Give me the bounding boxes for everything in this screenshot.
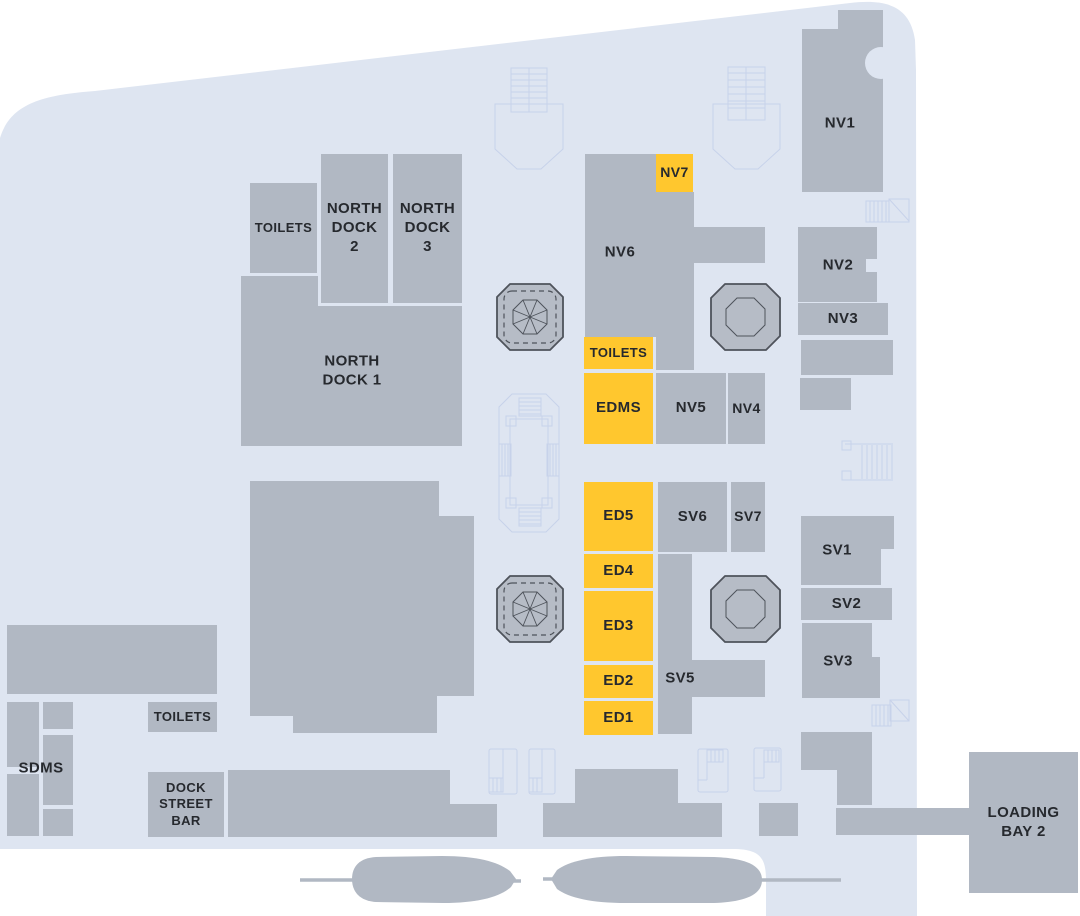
room-label: NV7 <box>660 164 688 182</box>
room-label-north-dock-1: NORTH DOCK 1 <box>322 352 381 390</box>
room-sv6[interactable]: SV6 <box>658 482 727 552</box>
venue-floor-plan: TOILETS NORTH DOCK 2 NORTH DOCK 3 NV7 NV… <box>0 0 1080 916</box>
stair-core-icon <box>497 284 563 350</box>
building-block <box>759 803 798 836</box>
room-toilets-north[interactable]: TOILETS <box>250 183 317 273</box>
boat-icon <box>352 856 516 903</box>
room-label: LOADING BAY 2 <box>988 804 1060 842</box>
room-label: NV4 <box>732 400 760 418</box>
building-block <box>7 702 39 767</box>
lift-core-icon <box>711 576 780 642</box>
room-ed5[interactable]: ED5 <box>584 482 653 551</box>
room-label: ED3 <box>603 617 633 636</box>
boat-icon <box>551 856 762 903</box>
room-label: ED2 <box>603 672 633 691</box>
room-dock-street-bar[interactable]: DOCK STREET BAR <box>148 772 224 837</box>
room-label: TOILETS <box>590 345 647 361</box>
room-label-nv6: NV6 <box>605 244 635 263</box>
room-north-dock-2[interactable]: NORTH DOCK 2 <box>321 154 388 303</box>
room-sv2[interactable]: SV2 <box>801 588 892 620</box>
room-north-dock-3[interactable]: NORTH DOCK 3 <box>393 154 462 303</box>
loading-bay-bridge <box>836 808 969 835</box>
building-block <box>250 481 474 733</box>
room-label: TOILETS <box>154 709 211 725</box>
room-ed4[interactable]: ED4 <box>584 554 653 588</box>
boats-layer <box>300 856 841 903</box>
room-label: SV2 <box>832 595 862 614</box>
building-block <box>43 809 73 836</box>
room-label: ED5 <box>603 507 633 526</box>
room-nv3[interactable]: NV3 <box>798 303 888 335</box>
building-block <box>43 702 73 729</box>
room-sv7[interactable]: SV7 <box>731 482 765 552</box>
room-label: DOCK STREET BAR <box>159 780 213 829</box>
building-block <box>7 625 217 694</box>
room-label: ED4 <box>603 562 633 581</box>
room-label: SV7 <box>734 508 762 526</box>
building-block <box>7 774 39 836</box>
building-block <box>800 378 851 410</box>
lift-core-icon <box>711 284 780 350</box>
room-toilets-south[interactable]: TOILETS <box>148 702 217 732</box>
room-label: SV6 <box>678 508 708 527</box>
stair-core-icon <box>497 576 563 642</box>
room-label: NV5 <box>676 399 706 418</box>
room-label-sdms[interactable]: SDMS <box>19 760 64 779</box>
nv1-notch <box>865 47 897 79</box>
room-label: ED1 <box>603 709 633 728</box>
room-nv5[interactable]: NV5 <box>656 373 726 444</box>
room-label-sv5: SV5 <box>665 670 695 689</box>
building-footprint <box>0 2 917 916</box>
room-label: EDMS <box>596 399 641 418</box>
room-nv4[interactable]: NV4 <box>728 373 765 444</box>
room-label: NORTH DOCK 3 <box>400 200 455 256</box>
room-nv1-shape[interactable] <box>802 10 883 192</box>
room-ed1[interactable]: ED1 <box>584 701 653 735</box>
room-nv7[interactable]: NV7 <box>656 154 693 192</box>
room-edms[interactable]: EDMS <box>584 373 653 444</box>
room-label-nv2: NV2 <box>823 257 853 276</box>
room-label-nv1: NV1 <box>825 115 855 134</box>
room-label-sv1: SV1 <box>822 542 852 561</box>
room-ed3[interactable]: ED3 <box>584 591 653 661</box>
building-block <box>801 340 893 375</box>
room-label: NORTH DOCK 2 <box>327 200 382 256</box>
room-loading-bay-2[interactable]: LOADING BAY 2 <box>969 752 1078 893</box>
room-ed2[interactable]: ED2 <box>584 665 653 698</box>
room-label: NV3 <box>828 310 858 329</box>
room-label-sv3: SV3 <box>823 653 853 672</box>
room-label: TOILETS <box>255 220 312 236</box>
room-toilets-mid[interactable]: TOILETS <box>584 337 653 369</box>
